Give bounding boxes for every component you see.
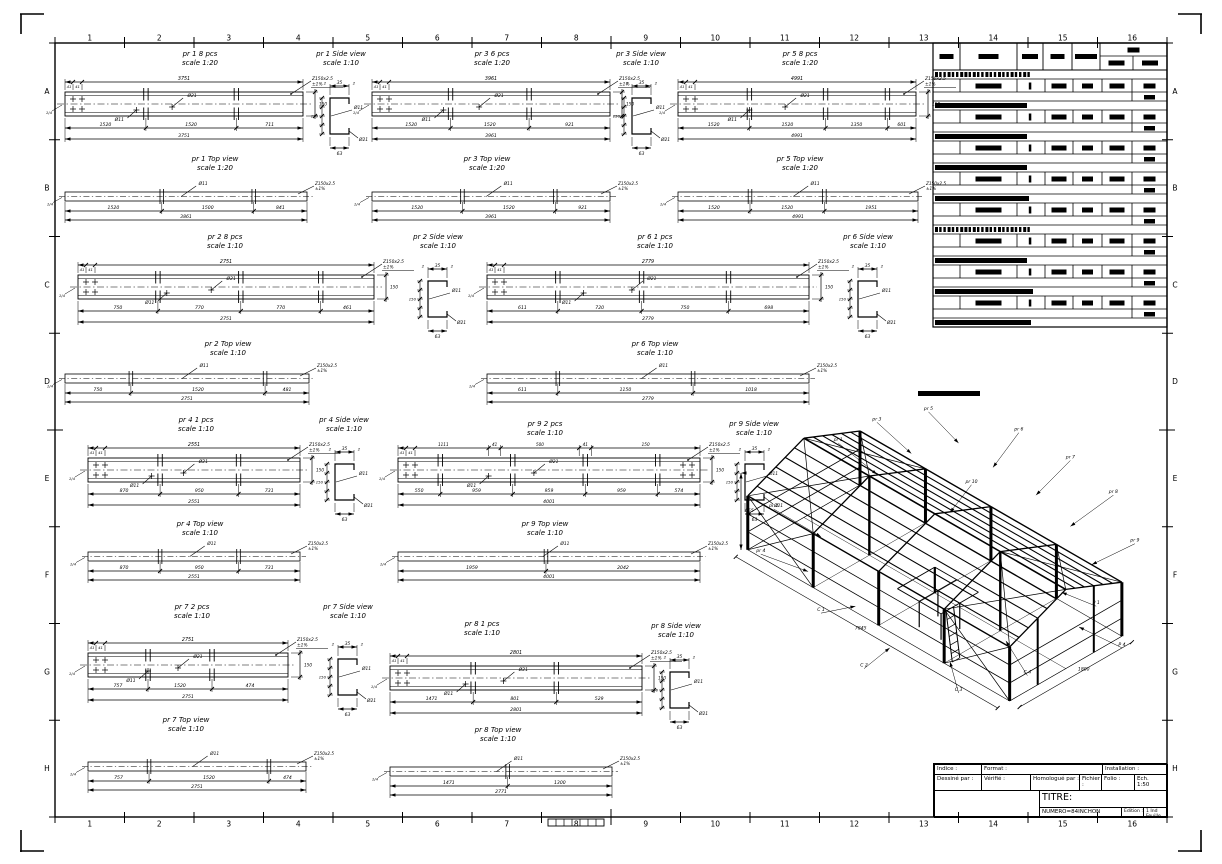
svg-text:63: 63 [677,725,683,731]
svg-text:921: 921 [565,122,574,128]
svg-text:1: 1 [87,34,92,43]
svg-text:1/4: 1/4 [59,293,66,298]
svg-text:11: 11 [780,820,790,829]
view-title: pr 3 Side view [616,50,666,59]
view-scale: scale 1:10 [651,631,701,640]
svg-text:±1%: ±1% [817,368,827,373]
svg-text:3: 3 [226,820,231,829]
svg-text:41: 41 [400,450,405,455]
svg-text:P 4: P 4 [1118,642,1125,648]
svg-text:3751: 3751 [178,76,190,82]
pr9-top-label: pr 9 Top viewscale 1:10 [522,520,569,538]
svg-text:2751: 2751 [220,316,232,322]
svg-text:35: 35 [342,446,348,452]
svg-text:2: 2 [361,642,364,647]
svg-text:Ø11: Ø11 [443,690,453,697]
svg-text:801: 801 [510,696,519,702]
view-title: pr 5 8 pcs [782,50,818,59]
svg-text:1/4: 1/4 [468,293,475,298]
pr8-elev-view: Ø21Ø1128014141150Z150x2.5±1%147180152928… [370,646,694,722]
svg-text:16: 16 [1127,820,1137,829]
svg-text:41: 41 [497,267,502,272]
svg-text:4991: 4991 [792,214,804,220]
view-title: pr 5 Top view [777,155,824,164]
svg-text:2771: 2771 [495,789,507,795]
pr6-side-view: 3522150Ø11Ø2163 [838,255,938,345]
svg-text:Z150x2.5: Z150x2.5 [924,76,946,82]
view-title: pr 6 Side view [843,233,893,242]
svg-text:2: 2 [852,264,855,269]
svg-text:1/4: 1/4 [379,476,386,481]
svg-text:731: 731 [265,488,274,494]
svg-text:959: 959 [617,488,626,494]
svg-text:1520: 1520 [185,122,197,128]
view-title: pr 7 Top view [163,716,210,725]
svg-text:Ø21: Ø21 [186,92,196,99]
svg-text:1951: 1951 [865,205,877,211]
svg-text:4: 4 [296,820,301,829]
svg-text:2751: 2751 [191,784,203,790]
svg-text:1520: 1520 [782,122,794,128]
svg-text:Ø11: Ø11 [466,482,476,489]
svg-text:F: F [45,571,49,580]
svg-text:770: 770 [276,305,285,311]
svg-text:2801: 2801 [510,707,522,713]
svg-text:921: 921 [578,205,587,211]
svg-text:13: 13 [919,34,929,43]
svg-text:63: 63 [435,334,441,340]
svg-text:1350: 1350 [851,122,863,128]
pr4-side-label: pr 4 Side viewscale 1:10 [319,416,369,434]
svg-text:Z150x2.5: Z150x2.5 [382,259,404,265]
titleblock-numero: NUMERO=84INCHON [1039,807,1122,818]
svg-text:Ø21: Ø21 [698,710,708,717]
svg-text:1/4: 1/4 [70,772,77,777]
view-scale: scale 1:10 [323,612,373,621]
svg-text:12: 12 [849,820,859,829]
pr3-elev-label: pr 3 6 pcsscale 1:20 [474,50,510,68]
pr7-side-label: pr 7 Side viewscale 1:10 [323,603,373,621]
pr9-side-label: pr 9 Side viewscale 1:10 [729,420,779,438]
svg-text:Ø21: Ø21 [493,92,503,99]
pr9-side-view: 3522150Ø11Ø2163 [725,438,825,528]
svg-text:10: 10 [710,34,720,43]
pr7-top-view: Ø11Z150x2.5±1%757152047427511/4 [68,750,358,798]
svg-text:2779: 2779 [642,396,654,402]
svg-text:Ø11: Ø11 [561,299,571,306]
svg-text:Ø11: Ø11 [451,287,461,294]
svg-text:Ø11: Ø11 [768,470,778,477]
svg-text:150: 150 [409,297,417,302]
svg-text:2: 2 [329,447,332,452]
svg-text:Ø21: Ø21 [226,275,236,282]
svg-text:63: 63 [639,151,645,157]
svg-text:1: 1 [87,820,92,829]
svg-text:41: 41 [688,84,693,89]
feuille-line2: Feuille [1146,814,1167,818]
svg-text:1/4: 1/4 [659,110,666,115]
svg-text:2: 2 [157,34,162,43]
view-title: pr 3 6 pcs [474,50,510,59]
svg-text:Ø11: Ø11 [198,180,208,187]
pr6-side-label: pr 6 Side viewscale 1:10 [843,233,893,251]
view-scale: scale 1:10 [843,242,893,251]
titleblock-edition: Edition : [1121,807,1144,818]
pr3-top-label: pr 3 Top viewscale 1:20 [464,155,511,173]
pr2-elev-label: pr 2 8 pcsscale 1:10 [207,233,243,251]
svg-text:Z150x2.5: Z150x2.5 [296,637,318,643]
view-title: pr 2 Top view [205,340,252,349]
svg-text:4991: 4991 [791,133,803,139]
svg-text:±1%: ±1% [818,265,829,271]
svg-text:41: 41 [374,84,379,89]
svg-text:2: 2 [739,447,742,452]
svg-text:41: 41 [90,450,95,455]
svg-text:1520: 1520 [174,683,186,689]
svg-text:Ø11: Ø11 [693,678,703,685]
svg-text:1520: 1520 [405,122,417,128]
svg-text:15: 15 [1058,34,1068,43]
svg-text:G: G [44,667,50,676]
svg-text:41: 41 [98,645,103,650]
svg-text:698: 698 [764,305,773,311]
svg-text:E: E [45,474,50,483]
svg-text:pr 7: pr 7 [1065,454,1075,460]
svg-text:2: 2 [324,81,327,86]
pr1-top-view: Ø11Z150x2.5±1%1520150084138611/4 [45,180,359,228]
view-title: pr 9 2 pcs [527,420,563,429]
svg-text:41: 41 [382,84,387,89]
svg-text:4001: 4001 [543,499,555,505]
svg-text:pr 3: pr 3 [871,416,881,422]
svg-text:150: 150 [304,663,312,668]
view-title: pr 6 1 pcs [637,233,673,242]
view-scale: scale 1:10 [205,349,252,358]
svg-text:35: 35 [639,80,645,86]
titleblock-empty-cell [934,790,1040,818]
svg-text:2779: 2779 [642,259,654,265]
svg-text:±1%: ±1% [618,186,628,191]
pr7-top-label: pr 7 Top viewscale 1:10 [163,716,210,734]
svg-text:Ø11: Ø11 [881,287,891,294]
svg-text:2751: 2751 [181,396,193,402]
svg-text:3961: 3961 [485,214,497,220]
view-scale: scale 1:20 [192,164,239,173]
svg-text:4991: 4991 [791,76,803,82]
view-scale: scale 1:10 [637,242,673,251]
svg-text:Ø11: Ø11 [114,116,124,123]
svg-text:950: 950 [195,488,204,494]
svg-text:1520: 1520 [411,205,423,211]
svg-text:6: 6 [435,820,440,829]
svg-text:Ø21: Ø21 [456,319,466,326]
svg-text:41: 41 [492,442,498,447]
pr6-elev-view: Ø21Ø1127794141150Z150x2.5±1%611720750698… [467,255,861,331]
svg-text:2: 2 [332,642,335,647]
svg-text:150: 150 [932,102,940,107]
svg-text:±1%: ±1% [620,761,630,766]
pr6-top-view: Ø11Z150x2.5±1%6111150101827791/4 [467,362,861,410]
view-scale: scale 1:20 [182,59,218,68]
svg-text:63: 63 [752,517,758,523]
view-title: pr 7 Side view [323,603,373,612]
pr4-elev-label: pr 4 1 pcsscale 1:10 [178,416,214,434]
svg-text:2042: 2042 [617,565,629,571]
svg-text:5: 5 [365,820,370,829]
svg-text:1520: 1520 [503,205,515,211]
svg-text:3861: 3861 [180,214,192,220]
pr8-elev-label: pr 8 1 pcsscale 1:10 [464,620,500,638]
svg-text:1/4: 1/4 [353,110,360,115]
svg-text:1/4: 1/4 [69,476,76,481]
svg-text:63: 63 [337,151,343,157]
svg-text:1/4: 1/4 [46,110,53,115]
svg-text:574: 574 [674,488,683,494]
svg-text:2551: 2551 [188,499,200,505]
svg-text:35: 35 [435,263,441,269]
svg-text:711: 711 [265,122,274,128]
svg-text:750: 750 [114,305,123,311]
view-scale: scale 1:20 [782,59,818,68]
pr8-side-view: 3522150Ø11Ø2163 [650,646,750,736]
svg-text:150: 150 [726,480,734,485]
view-title: pr 1 Side view [316,50,366,59]
svg-text:41: 41 [400,658,405,663]
svg-text:474: 474 [246,683,255,689]
view-scale: scale 1:10 [413,242,463,251]
svg-text:±1%: ±1% [308,546,318,551]
svg-text:13: 13 [919,820,929,829]
svg-text:Ø11: Ø11 [421,116,431,123]
svg-text:150: 150 [319,675,327,680]
svg-text:1/4: 1/4 [70,562,77,567]
svg-text:Ø21: Ø21 [773,502,783,509]
pr1-elev-label: pr 1 8 pcsscale 1:20 [182,50,218,68]
svg-text:959: 959 [545,488,554,494]
svg-text:9: 9 [643,820,648,829]
pr9-elev-label: pr 9 2 pcsscale 1:10 [527,420,563,438]
view-scale: scale 1:10 [177,529,224,538]
svg-text:Ø21: Ø21 [646,275,656,282]
svg-text:Ø11: Ø11 [727,116,737,123]
svg-text:1018: 1018 [745,387,757,393]
view-title: pr 8 Top view [475,726,522,735]
svg-text:3961: 3961 [485,133,497,139]
svg-text:1959: 1959 [466,565,478,571]
svg-text:16: 16 [1127,34,1137,43]
svg-text:1520: 1520 [100,122,112,128]
svg-text:2751: 2751 [182,637,194,643]
pr2-elev-view: Ø21Ø1127514141150Z150x2.5±1%750770770461… [58,255,426,331]
svg-text:2: 2 [693,655,696,660]
pr6-top-label: pr 6 Top viewscale 1:10 [632,340,679,358]
svg-text:C: C [44,280,49,289]
titleblock-titre: TITRE: [1039,790,1168,808]
svg-text:2801: 2801 [510,650,522,656]
svg-text:1150: 1150 [620,387,632,393]
svg-text:P 1: P 1 [1093,600,1100,606]
view-title: pr 9 Top view [522,520,569,529]
view-scale: scale 1:20 [777,164,824,173]
svg-text:Ø11: Ø11 [129,482,139,489]
pr2-side-label: pr 2 Side viewscale 1:10 [413,233,463,251]
svg-text:C 1: C 1 [817,607,825,613]
svg-text:Ø21: Ø21 [799,92,809,99]
svg-text:1520: 1520 [781,205,793,211]
view-scale: scale 1:10 [207,242,243,251]
svg-text:11: 11 [780,34,790,43]
svg-text:461: 461 [343,305,352,311]
svg-text:1/4: 1/4 [660,202,667,207]
svg-text:950: 950 [195,565,204,571]
svg-text:2: 2 [664,655,667,660]
svg-text:2: 2 [451,264,454,269]
svg-text:1520: 1520 [203,775,215,781]
title-block: Indice : Format : Installation : Dessiné… [933,763,1167,817]
svg-text:1/4: 1/4 [47,202,54,207]
view-scale: scale 1:10 [316,59,366,68]
svg-text:Ø11: Ø11 [503,180,513,187]
svg-text:Ø21: Ø21 [548,458,558,465]
titleblock-dessine: Dessiné par : [934,774,982,791]
svg-text:2: 2 [422,264,425,269]
svg-text:4001: 4001 [543,574,555,580]
svg-text:1471: 1471 [443,780,455,786]
view-scale: scale 1:10 [475,735,522,744]
svg-text:G: G [1172,667,1178,676]
svg-text:41: 41 [80,267,85,272]
svg-text:41: 41 [583,442,589,447]
svg-text:41: 41 [408,450,413,455]
svg-text:Ø11: Ø11 [658,362,668,369]
svg-text:2: 2 [358,447,361,452]
svg-text:Z150x2.5: Z150x2.5 [817,259,839,265]
svg-text:C: C [1172,280,1177,289]
svg-text:C 2: C 2 [860,663,868,669]
svg-text:720: 720 [595,305,604,311]
svg-text:Ø11: Ø11 [513,755,523,762]
svg-text:1800: 1800 [1078,667,1090,673]
pr2-top-view: Ø11Z150x2.5±1%750152048127511/4 [45,362,361,410]
svg-text:C 3: C 3 [955,687,963,693]
svg-text:611: 611 [518,305,527,311]
svg-text:2551: 2551 [188,442,200,448]
pr5-top-view: Ø11Z150x2.5±1%15201520195149911/4 [658,180,970,228]
svg-text:870: 870 [120,565,129,571]
pr4-top-label: pr 4 Top viewscale 1:10 [177,520,224,538]
svg-text:150: 150 [839,297,847,302]
svg-text:Ø11: Ø11 [199,362,209,369]
svg-text:35: 35 [677,654,683,660]
svg-text:±1%: ±1% [383,265,394,271]
view-title: pr 6 Top view [632,340,679,349]
svg-text:Ø21: Ø21 [518,666,528,673]
svg-text:7: 7 [504,34,509,43]
svg-text:4: 4 [296,34,301,43]
svg-text:Ø21: Ø21 [886,319,896,326]
titleblock-folio: Folio : [1101,774,1135,791]
view-scale: scale 1:10 [527,429,563,438]
svg-text:±1%: ±1% [708,546,718,551]
svg-text:529: 529 [595,696,604,702]
svg-text:63: 63 [345,712,351,718]
svg-text:63: 63 [865,334,871,340]
svg-text:959: 959 [472,488,481,494]
svg-text:770: 770 [195,305,204,311]
svg-text:500: 500 [536,442,544,447]
svg-text:Ø11: Ø11 [810,180,820,187]
svg-text:5: 5 [365,34,370,43]
pr4-elev-view: Ø21Ø1125514141150Z150x2.5±1%870950731255… [68,438,352,514]
svg-text:Ø11: Ø11 [209,750,219,757]
view-scale: scale 1:10 [616,59,666,68]
svg-text:±1%: ±1% [709,448,720,454]
pr1-side-label: pr 1 Side viewscale 1:10 [316,50,366,68]
titleblock-verifie: Vérifié : [981,774,1031,791]
titleblock-homologue: Homologué par : [1030,774,1080,791]
svg-text:E: E [1173,474,1178,483]
svg-text:63: 63 [342,517,348,523]
view-title: pr 9 Side view [729,420,779,429]
svg-text:±1%: ±1% [926,186,936,191]
svg-text:41: 41 [680,84,685,89]
svg-text:D: D [1172,377,1178,386]
svg-text:41: 41 [75,84,80,89]
svg-text:750: 750 [681,305,690,311]
pr1-elev-view: Ø21Ø1137514141150Z150x2.5±1%152015207113… [45,72,355,148]
svg-text:2751: 2751 [220,259,232,265]
svg-text:Ø11: Ø11 [206,540,216,547]
svg-text:1/4: 1/4 [371,684,378,689]
pr9-elev-view: Ø21Ø11111141500411504141150Z150x2.5±1%55… [378,438,752,514]
svg-text:6: 6 [435,34,440,43]
svg-text:7845: 7845 [855,625,867,631]
svg-text:1471: 1471 [426,696,438,702]
svg-text:3751: 3751 [178,133,190,139]
svg-text:±1%: ±1% [297,643,308,649]
svg-text:550: 550 [415,488,424,494]
svg-text:1520: 1520 [708,205,720,211]
svg-text:150: 150 [642,442,650,447]
solid-bar [918,391,980,396]
svg-text:14: 14 [988,820,998,829]
pr1-top-label: pr 1 Top viewscale 1:20 [192,155,239,173]
svg-text:±1%: ±1% [317,368,327,373]
svg-text:2779: 2779 [642,316,654,322]
svg-text:41: 41 [67,84,72,89]
svg-text:757: 757 [114,775,123,781]
pr7-elev-view: Ø21Ø1127514141150Z150x2.5±1%757152047427… [68,633,340,709]
view-title: pr 7 2 pcs [174,603,210,612]
svg-text:2: 2 [157,820,162,829]
pr8-top-label: pr 8 Top viewscale 1:10 [475,726,522,744]
titleblock-feuille: 1 Ind Feuille [1143,807,1168,818]
svg-text:150: 150 [716,468,724,473]
svg-text:2551: 2551 [188,574,200,580]
pr3-top-view: Ø11Z150x2.5±1%1520152092139611/4 [352,180,662,228]
svg-text:2: 2 [626,81,629,86]
view-scale: scale 1:10 [729,429,779,438]
view-scale: scale 1:10 [464,629,500,638]
titleblock-fichier: Fichier : [1079,774,1102,791]
view-title: pr 4 Side view [319,416,369,425]
svg-text:481: 481 [283,387,292,393]
pr5-top-label: pr 5 Top viewscale 1:20 [777,155,824,173]
svg-text:41: 41 [98,450,103,455]
svg-text:H: H [44,764,50,773]
view-scale: scale 1:10 [632,349,679,358]
svg-text:pr 5: pr 5 [923,406,933,412]
